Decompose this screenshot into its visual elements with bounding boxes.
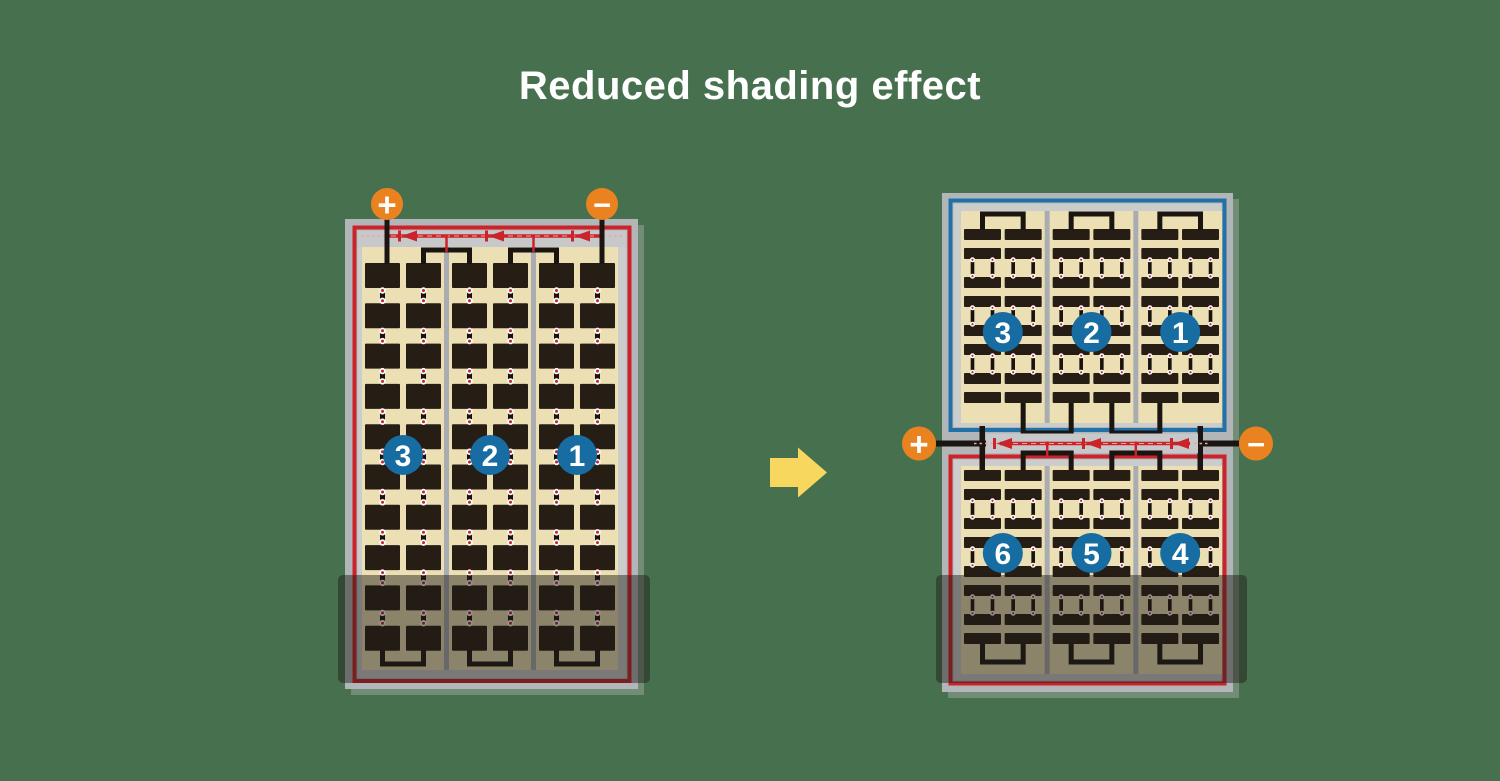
group-label-badge: 1	[1160, 312, 1200, 352]
cell-link	[1059, 257, 1064, 278]
solar-cell	[452, 505, 487, 530]
solar-cell	[964, 518, 1001, 529]
cell-link	[1099, 353, 1104, 374]
cell-link	[1208, 305, 1213, 326]
solar-cell	[964, 248, 1001, 259]
cell-link	[594, 368, 600, 385]
solar-cell	[1053, 392, 1090, 403]
cell-link	[1147, 546, 1152, 567]
cell-link	[1208, 353, 1213, 374]
cell-link	[1099, 498, 1104, 519]
solar-cell	[1053, 248, 1090, 259]
group-label: 3	[395, 440, 412, 473]
cell-link	[1119, 546, 1124, 567]
solar-cell	[1005, 489, 1042, 500]
cell-link	[594, 328, 600, 345]
solar-cell	[580, 505, 615, 530]
solar-cell	[1093, 248, 1130, 259]
cell-link	[1188, 257, 1193, 278]
solar-cell	[406, 263, 441, 288]
cell-link	[1079, 353, 1084, 374]
solar-cell	[580, 344, 615, 369]
cell-link	[1147, 257, 1152, 278]
cell-link	[420, 489, 426, 506]
cell-link	[1059, 498, 1064, 519]
solar-cell	[493, 384, 528, 409]
solar-cell	[1005, 229, 1042, 240]
cell-link	[379, 287, 385, 304]
solar-cell	[1005, 248, 1042, 259]
cell-link	[1147, 498, 1152, 519]
solar-cell	[1053, 470, 1090, 481]
solar-cell	[1053, 489, 1090, 500]
solar-cell	[1141, 489, 1178, 500]
cell-link	[1119, 305, 1124, 326]
column-divider	[1045, 211, 1050, 423]
solar-cell	[1053, 229, 1090, 240]
cell-link	[466, 529, 472, 546]
infographic-canvas: Reduced shading effect +−321+−321654	[0, 0, 1500, 781]
solar-cell	[580, 303, 615, 328]
solar-cell	[964, 296, 1001, 307]
group-label: 1	[1172, 317, 1189, 350]
solar-cell	[1182, 373, 1219, 384]
solar-cell	[1141, 229, 1178, 240]
left-panel: +−321	[338, 186, 650, 695]
cell-link	[990, 353, 995, 374]
terminal-label: −	[593, 187, 611, 222]
plus-terminal-icon: +	[902, 426, 936, 463]
solar-cell	[1005, 296, 1042, 307]
group-label-badge: 5	[1072, 533, 1112, 573]
transform-arrow-icon	[770, 448, 827, 498]
cell-link	[594, 287, 600, 304]
cell-link	[553, 529, 559, 546]
solar-cell	[1005, 373, 1042, 384]
cell-link	[553, 408, 559, 425]
cell-link	[1011, 257, 1016, 278]
group-label-badge: 2	[1072, 312, 1112, 352]
cell-link	[1011, 498, 1016, 519]
cell-link	[466, 489, 472, 506]
solar-cell	[365, 344, 400, 369]
cell-link	[1031, 546, 1036, 567]
solar-cell	[1141, 518, 1178, 529]
cell-link	[507, 328, 513, 345]
cell-link	[1147, 353, 1152, 374]
solar-cell	[452, 384, 487, 409]
edge-connector-wire	[1198, 426, 1204, 470]
cell-link	[1119, 353, 1124, 374]
solar-cell	[1182, 277, 1219, 288]
solar-cell	[539, 545, 574, 570]
cell-link	[970, 305, 975, 326]
solar-cell	[406, 545, 441, 570]
solar-cell	[452, 263, 487, 288]
solar-cell	[1005, 470, 1042, 481]
edge-connector-wire	[980, 426, 986, 470]
cell-link	[420, 529, 426, 546]
solar-cell	[406, 384, 441, 409]
cell-link	[1208, 498, 1213, 519]
solar-cell	[1093, 296, 1130, 307]
solar-cell	[452, 344, 487, 369]
solar-cell	[365, 263, 400, 288]
cell-link	[1167, 498, 1172, 519]
cell-link	[466, 328, 472, 345]
group-label: 3	[994, 317, 1011, 350]
terminal-label: +	[377, 186, 396, 223]
column-divider	[1133, 211, 1138, 423]
solar-cell	[1005, 277, 1042, 288]
group-label: 5	[1083, 538, 1100, 571]
group-label-badge: 1	[557, 435, 597, 475]
solar-cell	[493, 505, 528, 530]
cell-link	[1059, 305, 1064, 326]
solar-cell	[365, 545, 400, 570]
solar-cell	[539, 263, 574, 288]
cell-link	[379, 328, 385, 345]
group-label-badge: 4	[1160, 533, 1200, 573]
solar-cell	[1093, 470, 1130, 481]
cell-link	[1119, 498, 1124, 519]
solar-cell	[452, 303, 487, 328]
solar-cell	[1053, 373, 1090, 384]
cell-link	[553, 368, 559, 385]
solar-cell	[1053, 277, 1090, 288]
cell-link	[379, 489, 385, 506]
solar-cell	[539, 303, 574, 328]
group-label: 6	[994, 538, 1011, 571]
solar-cell	[1053, 296, 1090, 307]
solar-cell	[1182, 229, 1219, 240]
cell-link	[970, 498, 975, 519]
solar-panel-shading-diagram: +−321+−321654	[0, 0, 1500, 781]
solar-cell	[493, 303, 528, 328]
shade-overlay	[936, 575, 1247, 683]
cell-link	[1167, 353, 1172, 374]
cell-link	[1079, 257, 1084, 278]
solar-cell	[1141, 248, 1178, 259]
cell-link	[466, 368, 472, 385]
cell-link	[1188, 353, 1193, 374]
cell-link	[420, 287, 426, 304]
solar-cell	[493, 545, 528, 570]
cell-link	[1059, 353, 1064, 374]
solar-cell	[1141, 392, 1178, 403]
solar-cell	[1182, 296, 1219, 307]
cell-link	[379, 529, 385, 546]
solar-cell	[365, 303, 400, 328]
cell-link	[1079, 498, 1084, 519]
solar-cell	[406, 303, 441, 328]
solar-cell	[580, 545, 615, 570]
solar-cell	[964, 489, 1001, 500]
cell-link	[594, 489, 600, 506]
cell-link	[1208, 546, 1213, 567]
cell-link	[1031, 498, 1036, 519]
solar-cell	[964, 392, 1001, 403]
cell-link	[379, 408, 385, 425]
solar-cell	[406, 505, 441, 530]
plus-terminal-icon: +	[371, 186, 403, 223]
solar-cell	[1093, 489, 1130, 500]
solar-cell	[580, 263, 615, 288]
group-label: 2	[482, 440, 499, 473]
solar-cell	[493, 344, 528, 369]
solar-cell	[964, 277, 1001, 288]
cell-link	[1059, 546, 1064, 567]
group-label: 4	[1172, 538, 1189, 571]
solar-cell	[365, 505, 400, 530]
solar-cell	[1005, 392, 1042, 403]
right-panel: +−321654	[902, 193, 1273, 698]
cell-link	[594, 408, 600, 425]
group-label-badge: 3	[983, 312, 1023, 352]
solar-cell	[1182, 489, 1219, 500]
cell-link	[1167, 257, 1172, 278]
solar-cell	[1141, 373, 1178, 384]
cell-link	[990, 498, 995, 519]
cell-link	[466, 408, 472, 425]
solar-cell	[1182, 470, 1219, 481]
cell-link	[990, 257, 995, 278]
solar-cell	[406, 344, 441, 369]
solar-cell	[365, 384, 400, 409]
cell-link	[970, 257, 975, 278]
cell-link	[553, 287, 559, 304]
terminal-label: −	[1247, 427, 1265, 462]
cell-link	[507, 529, 513, 546]
solar-cell	[580, 384, 615, 409]
solar-cell	[964, 373, 1001, 384]
shade-overlay	[338, 575, 650, 683]
solar-cell	[1141, 470, 1178, 481]
solar-cell	[1182, 248, 1219, 259]
solar-cell	[1093, 518, 1130, 529]
group-label-badge: 2	[470, 435, 510, 475]
solar-cell	[539, 505, 574, 530]
terminal-label: +	[909, 426, 928, 463]
solar-cell	[1053, 518, 1090, 529]
cell-link	[507, 368, 513, 385]
solar-cell	[1093, 277, 1130, 288]
cell-link	[1147, 305, 1152, 326]
cell-link	[466, 287, 472, 304]
solar-cell	[1182, 518, 1219, 529]
cell-link	[379, 368, 385, 385]
cell-link	[1188, 498, 1193, 519]
solar-cell	[1093, 392, 1130, 403]
cell-link	[553, 489, 559, 506]
solar-cell	[493, 263, 528, 288]
group-label: 2	[1083, 317, 1100, 350]
cell-link	[594, 529, 600, 546]
cell-link	[420, 408, 426, 425]
solar-cell	[539, 344, 574, 369]
solar-cell	[452, 545, 487, 570]
cell-link	[1031, 305, 1036, 326]
solar-cell	[1141, 277, 1178, 288]
solar-cell	[964, 229, 1001, 240]
solar-cell	[1182, 392, 1219, 403]
cell-link	[970, 353, 975, 374]
cell-link	[507, 408, 513, 425]
cell-link	[507, 287, 513, 304]
solar-cell	[964, 470, 1001, 481]
cell-link	[1208, 257, 1213, 278]
group-label-badge: 3	[383, 435, 423, 475]
solar-cell	[1093, 229, 1130, 240]
cell-link	[420, 328, 426, 345]
minus-terminal-icon: −	[1239, 427, 1273, 462]
cell-link	[1031, 257, 1036, 278]
cell-link	[970, 546, 975, 567]
group-label-badge: 6	[983, 533, 1023, 573]
solar-cell	[1005, 518, 1042, 529]
solar-cell	[539, 384, 574, 409]
cell-link	[1031, 353, 1036, 374]
cell-link	[420, 368, 426, 385]
solar-cell	[1093, 373, 1130, 384]
solar-cell	[1141, 296, 1178, 307]
cell-link	[1119, 257, 1124, 278]
cell-link	[1099, 257, 1104, 278]
cell-link	[507, 489, 513, 506]
cell-link	[553, 328, 559, 345]
minus-terminal-icon: −	[586, 187, 618, 222]
group-label: 1	[569, 440, 586, 473]
cell-link	[1011, 353, 1016, 374]
